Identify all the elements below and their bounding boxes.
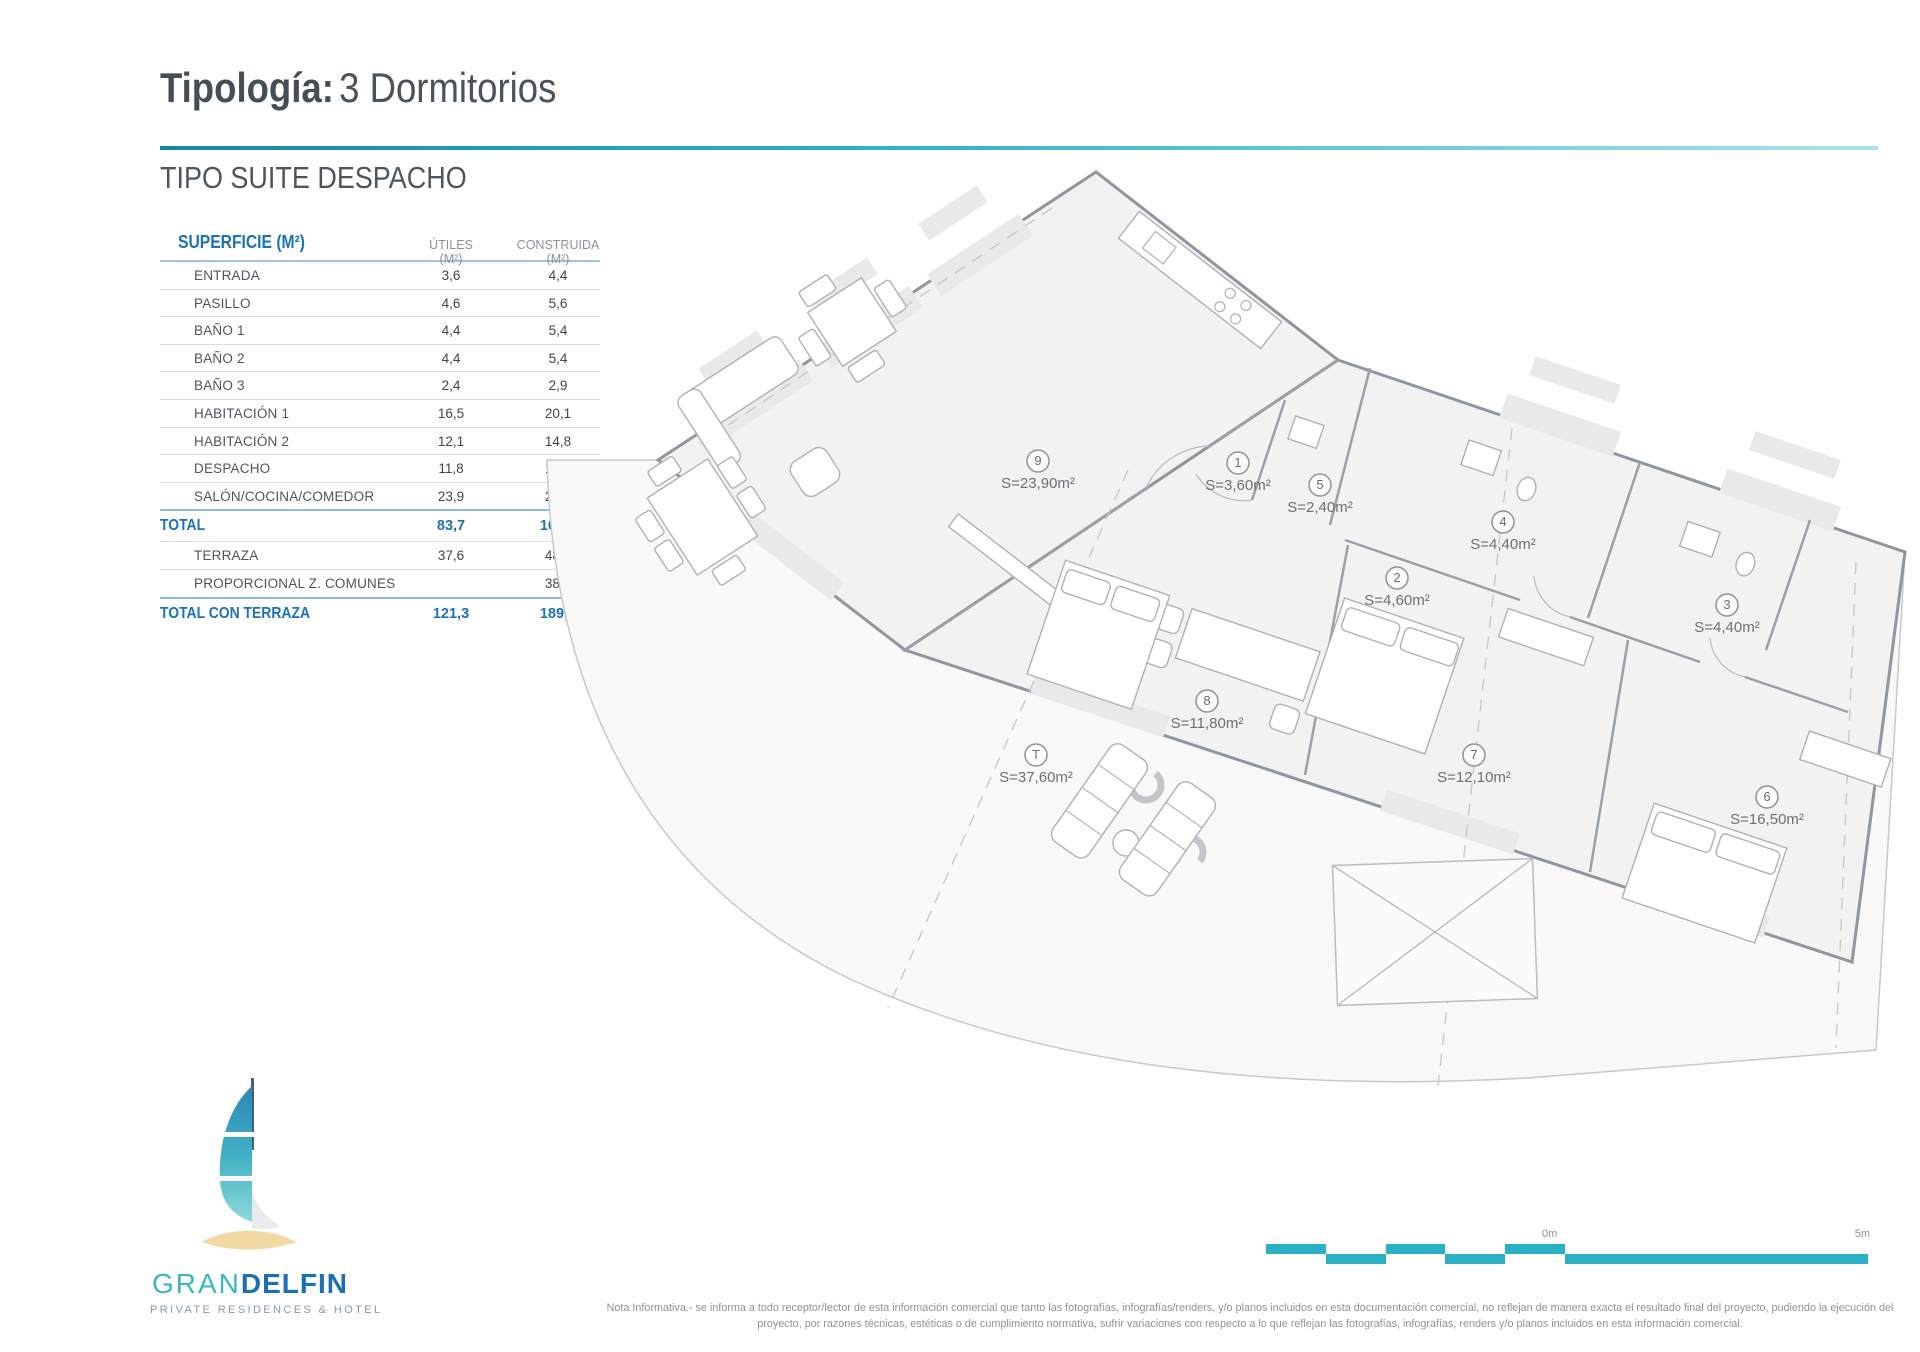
- svg-text:8: 8: [1203, 693, 1210, 708]
- scale-bar-segment: [1386, 1244, 1445, 1254]
- scale-bar-segment: [1565, 1254, 1868, 1264]
- svg-text:7: 7: [1470, 747, 1477, 762]
- svg-text:9: 9: [1034, 453, 1041, 468]
- scale-bar-segment: [1326, 1254, 1386, 1264]
- brand-tagline: PRIVATE RESIDENCES & HOTEL: [150, 1304, 350, 1316]
- svg-text:3: 3: [1723, 597, 1730, 612]
- svg-text:S=16,50m²: S=16,50m²: [1730, 811, 1804, 828]
- scale-bar-segment: [1505, 1244, 1565, 1254]
- scale-bar-segment: [1266, 1244, 1326, 1254]
- svg-text:2: 2: [1393, 570, 1400, 585]
- svg-text:S=11,80m²: S=11,80m²: [1171, 715, 1244, 732]
- legal-note: Nota Informativa.- se informa a todo rec…: [600, 1300, 1900, 1332]
- svg-text:S=2,40m²: S=2,40m²: [1287, 499, 1352, 516]
- svg-text:S=3,60m²: S=3,60m²: [1205, 477, 1270, 494]
- svg-text:S=12,10m²: S=12,10m²: [1437, 769, 1511, 786]
- brand-logo: GRANDELFIN PRIVATE RESIDENCES & HOTEL: [150, 1072, 350, 1316]
- scale-five-label: 5m: [1855, 1228, 1870, 1240]
- svg-text:6: 6: [1763, 789, 1770, 804]
- svg-text:S=4,40m²: S=4,40m²: [1694, 619, 1759, 636]
- svg-text:S=37,60m²: S=37,60m²: [999, 769, 1073, 786]
- sail-tower-icon: [190, 1072, 310, 1262]
- svg-text:1: 1: [1234, 455, 1241, 470]
- brand-name: GRANDELFIN: [150, 1268, 350, 1300]
- svg-text:S=4,60m²: S=4,60m²: [1364, 592, 1429, 609]
- svg-text:S=4,40m²: S=4,40m²: [1470, 536, 1535, 553]
- terrace-skylight: [1333, 859, 1538, 1006]
- svg-text:S=23,90m²: S=23,90m²: [1001, 475, 1075, 492]
- scale-bar: 0m 5m: [1266, 1228, 1868, 1264]
- svg-text:5: 5: [1316, 477, 1323, 492]
- typology-sheet: Tipología:3 Dormitorios TIPO SUITE DESPA…: [0, 0, 1920, 1352]
- svg-text:4: 4: [1499, 514, 1506, 529]
- scale-zero-label: 0m: [1542, 1228, 1557, 1240]
- svg-text:T: T: [1032, 747, 1040, 762]
- scale-bar-segment: [1445, 1254, 1505, 1264]
